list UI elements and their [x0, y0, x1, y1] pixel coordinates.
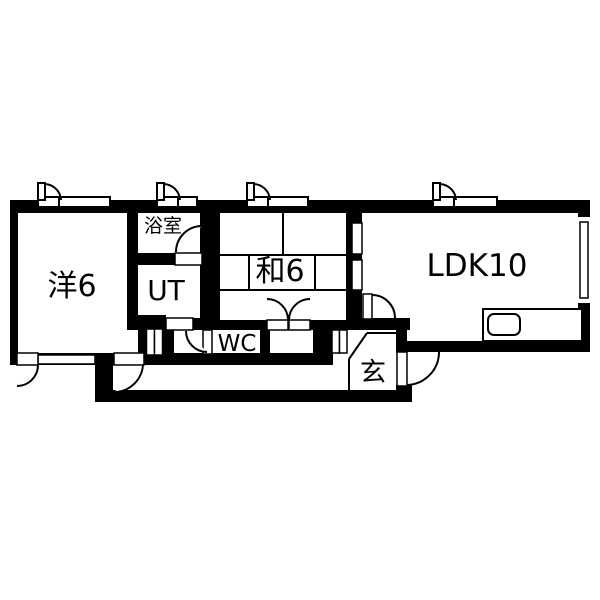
wall-ut-south-east-stub	[193, 318, 208, 330]
wall-hall-stub-east	[162, 327, 174, 357]
room-label-bath: 浴室	[144, 215, 182, 237]
opening-hall-genkan	[332, 330, 347, 353]
window-leaf	[247, 183, 254, 200]
wall-above-genkan	[362, 318, 410, 330]
opening-utility	[166, 318, 193, 330]
opening-hall-west	[147, 329, 163, 355]
wall-genkan-stub-west	[313, 326, 333, 365]
window-western-south	[38, 355, 95, 364]
wall-japanese-west	[208, 212, 220, 330]
window-ldk-east	[578, 217, 590, 303]
window-leaf	[157, 183, 164, 200]
floor-plan-drawing: 洋6 浴室 UT 和6 WC LDK10 玄	[0, 0, 600, 600]
room-label-japanese: 和6	[255, 254, 304, 289]
wall-western-east	[127, 212, 138, 330]
room-label-utility: UT	[147, 274, 185, 307]
wall-genkan-east-lower	[396, 385, 412, 402]
wall-wc-east	[260, 330, 270, 355]
wall-left	[10, 200, 18, 365]
kitchen-counter	[483, 309, 582, 341]
floor-plan-canvas: 洋6 浴室 UT 和6 WC LDK10 玄	[0, 0, 600, 600]
room-label-toilet: WC	[218, 331, 257, 357]
wall-bottom	[100, 390, 412, 402]
window-leaf	[433, 183, 440, 200]
room-label-living: LDK10	[427, 248, 528, 284]
room-label-entrance: 玄	[360, 358, 386, 388]
kitchen-sink	[488, 314, 520, 335]
wall-hall-stub-west	[138, 330, 147, 355]
wall-ldk-south	[396, 341, 590, 352]
room-label-western: 洋6	[47, 269, 96, 304]
wall-ut-south	[127, 315, 166, 330]
window-leaf	[38, 183, 45, 200]
